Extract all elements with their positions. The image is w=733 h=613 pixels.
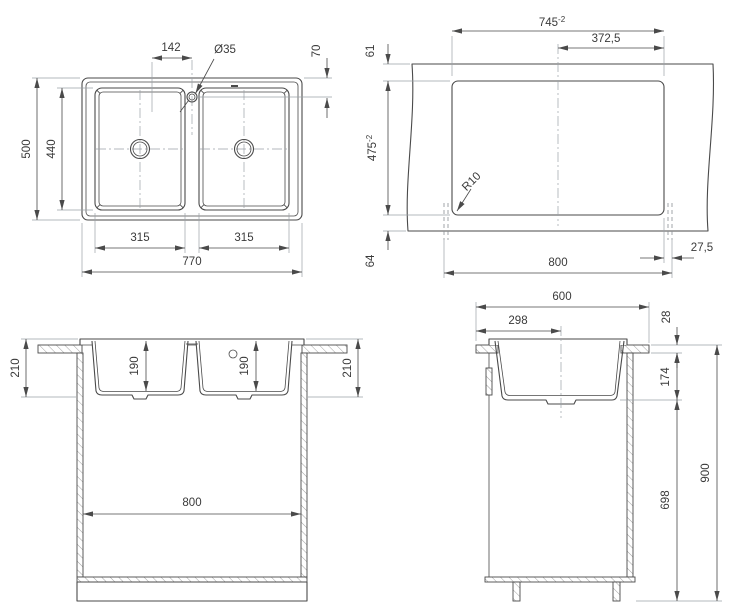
cabinet-plinth <box>77 582 307 601</box>
sink-dimension-drawing: 142 Ø35 70 500 440 315 315 <box>0 0 733 608</box>
overflow-hole <box>229 350 237 358</box>
countertop-panel <box>407 64 713 231</box>
side-sink-flange <box>489 339 627 345</box>
dim-faucet-hole-diameter: Ø35 <box>214 44 236 56</box>
countertop-back <box>621 345 649 353</box>
cabinet-bottom <box>77 577 307 582</box>
dim-overall-width: 770 <box>182 256 201 268</box>
dim-cutout-height: 475-2 <box>365 134 379 161</box>
dim-counter-thickness: 28 <box>661 311 673 324</box>
countertop-front <box>476 345 498 353</box>
cabinet-bottom-panel <box>485 577 635 582</box>
dim-left-bowl-width: 315 <box>130 232 149 244</box>
cabinet-leg-back <box>613 582 620 601</box>
top-view: 142 Ø35 70 500 440 315 315 <box>21 42 332 277</box>
countertop-left <box>38 345 82 353</box>
cabinet-front-rail <box>486 368 492 395</box>
cabinet-right-wall <box>301 353 307 577</box>
dim-floor-clearance: 698 <box>660 490 672 509</box>
dim-hole-offset: 70 <box>311 45 323 58</box>
dim-right-bowl-width: 315 <box>234 232 253 244</box>
dim-cabinet-inner-width: 800 <box>182 497 201 509</box>
dim-sink-depth: 500 <box>21 139 33 158</box>
faucet-hole <box>187 60 197 135</box>
technical-drawing-page: 142 Ø35 70 500 440 315 315 <box>0 0 733 608</box>
countertop-right <box>302 345 347 353</box>
side-bowl-section <box>495 341 624 404</box>
dim-bowl-under-depth: 174 <box>660 367 672 387</box>
dim-bowl-depth-right: 190 <box>239 356 251 375</box>
dim-side-gap: 27,5 <box>691 242 713 254</box>
cutout-view: 745-2 372,5 61 475-2 64 R10 800 27,5 <box>365 15 713 278</box>
dim-cutout-width: 745-2 <box>539 15 566 29</box>
dim-front-edge: 61 <box>365 45 377 58</box>
cabinet-left-wall <box>77 353 83 577</box>
dim-cabinet-width: 800 <box>548 257 567 269</box>
side-view-dimensions: 600 298 28 174 698 900 <box>476 291 722 601</box>
dim-rim-depth-left: 210 <box>10 358 22 377</box>
dim-bowl-pitch: 142 <box>161 42 180 54</box>
dim-center-offset: 298 <box>508 315 527 327</box>
side-section-view: 600 298 28 174 698 900 <box>476 291 722 601</box>
dim-bowl-length: 440 <box>46 139 58 158</box>
cabinet-back-wall <box>627 353 633 577</box>
dim-counter-depth: 600 <box>552 291 571 303</box>
dim-bowl-depth-left: 190 <box>129 356 141 375</box>
dim-cutout-half-width: 372,5 <box>592 33 621 45</box>
left-bowl <box>95 88 185 210</box>
right-bowl <box>199 86 289 210</box>
cabinet-leg-front <box>513 582 520 601</box>
dim-rim-depth-right: 210 <box>342 358 354 377</box>
front-section-view: 210 210 190 190 800 <box>10 339 363 601</box>
dim-back-edge: 64 <box>365 254 377 267</box>
dim-worktop-height: 900 <box>700 463 712 482</box>
